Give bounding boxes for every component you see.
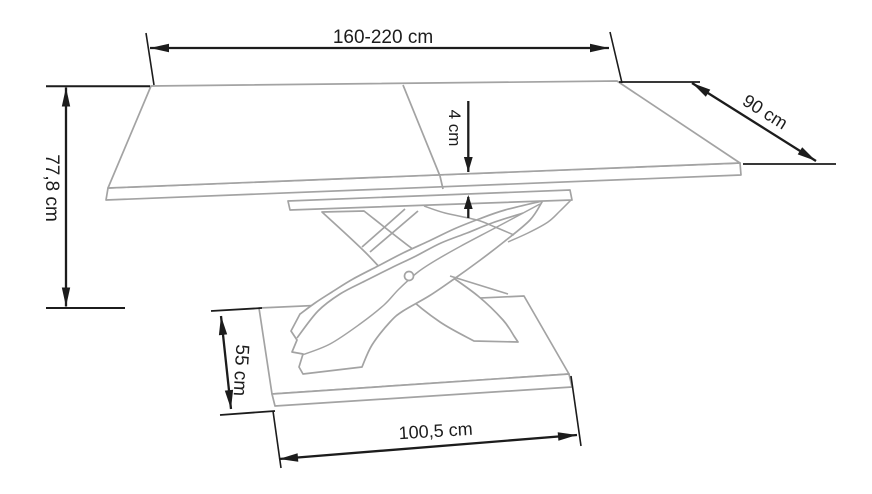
svg-text:100,5 cm: 100,5 cm [398,419,473,443]
svg-text:90 cm: 90 cm [739,90,791,133]
svg-text:160-220 cm: 160-220 cm [333,27,433,48]
svg-text:55 cm: 55 cm [229,344,253,397]
svg-text:4 cm: 4 cm [445,110,464,147]
svg-text:77,8 cm: 77,8 cm [41,154,62,222]
